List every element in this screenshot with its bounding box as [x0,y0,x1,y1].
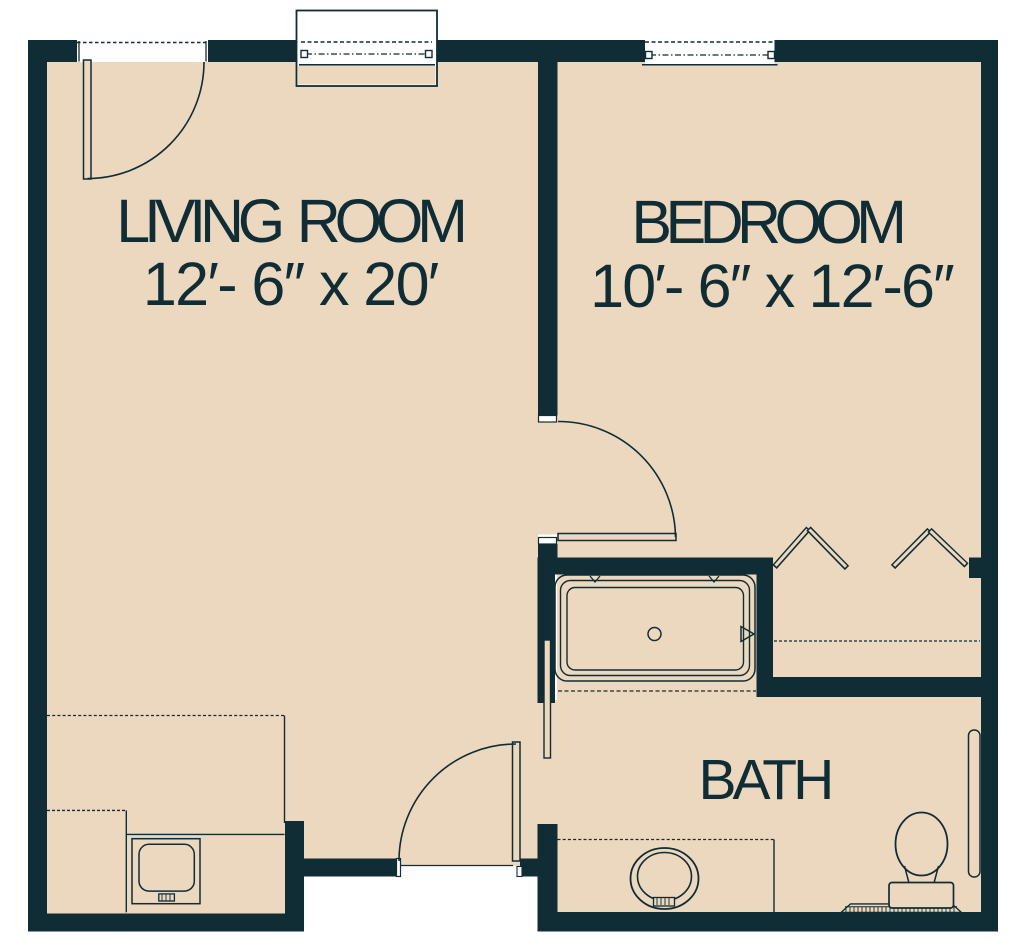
svg-text:12′- 6″ x 20′: 12′- 6″ x 20′ [143,250,439,318]
svg-text:10′- 6″ x 12′-6″: 10′- 6″ x 12′-6″ [590,252,954,320]
svg-text:LIVING ROOM: LIVING ROOM [116,187,463,255]
svg-text:BATH: BATH [699,748,831,812]
svg-text:BEDROOM: BEDROOM [631,188,902,256]
